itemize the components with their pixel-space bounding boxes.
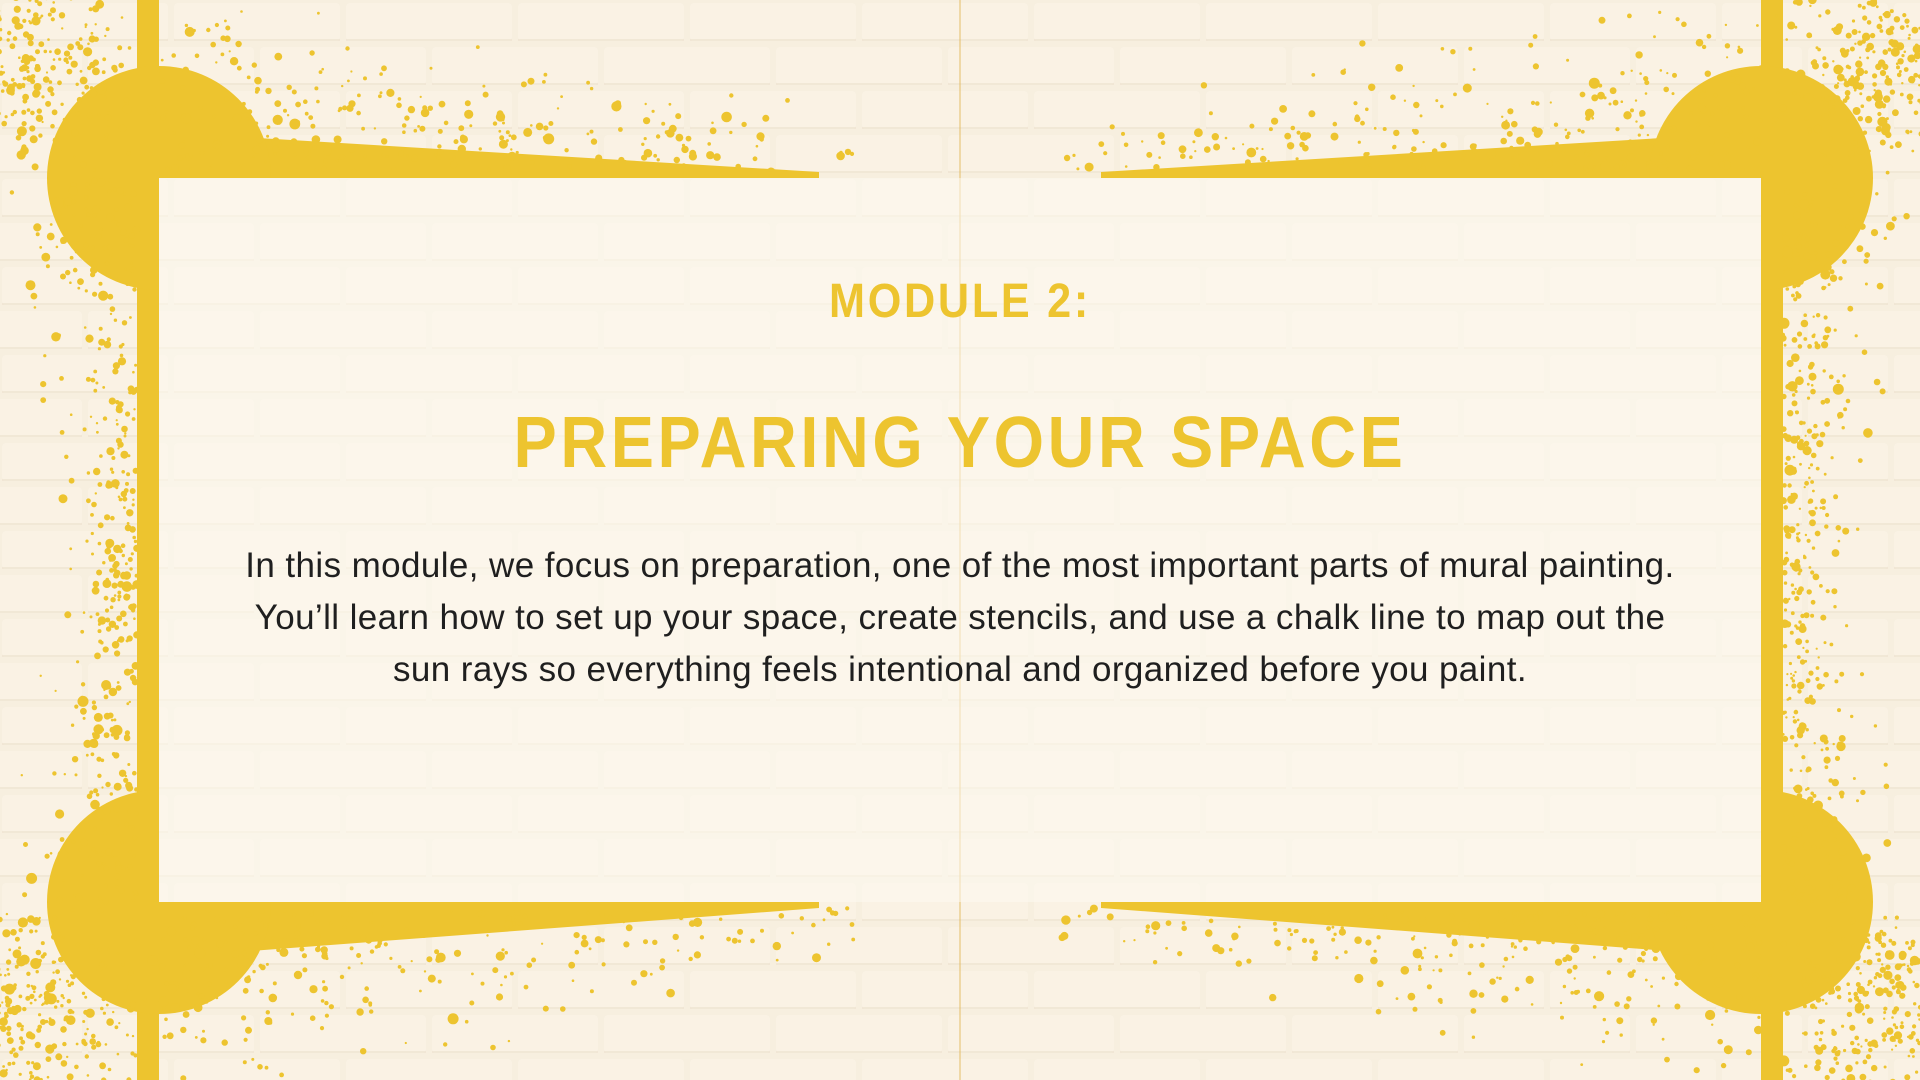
module-description: In this module, we focus on preparation,… <box>245 540 1675 696</box>
module-title: PREPARING YOUR SPACE <box>239 404 1681 482</box>
content-panel: MODULE 2: PREPARING YOUR SPACE In this m… <box>159 178 1761 902</box>
slide: MODULE 2: PREPARING YOUR SPACE In this m… <box>0 0 1920 1080</box>
module-eyebrow: MODULE 2: <box>239 274 1681 330</box>
